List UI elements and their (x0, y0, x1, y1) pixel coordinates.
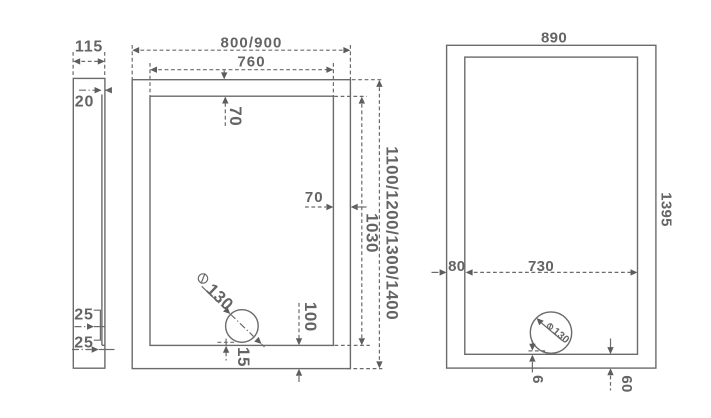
svg-text:1100/1200/1300/1400: 1100/1200/1300/1400 (382, 146, 401, 320)
svg-text:15: 15 (234, 347, 253, 367)
svg-text:70: 70 (305, 189, 324, 206)
svg-text:1030: 1030 (362, 213, 381, 253)
svg-text:25: 25 (74, 306, 93, 323)
svg-text:800/900: 800/900 (221, 34, 283, 51)
svg-text:100: 100 (301, 302, 320, 332)
svg-text:60: 60 (618, 375, 635, 392)
svg-text:890: 890 (541, 30, 567, 47)
svg-text:760: 760 (237, 53, 265, 70)
svg-text:70: 70 (226, 106, 245, 126)
svg-text:6: 6 (529, 375, 546, 384)
svg-text:25: 25 (74, 334, 93, 351)
svg-text:115: 115 (75, 39, 103, 56)
svg-text:80: 80 (448, 258, 465, 275)
svg-text:130: 130 (202, 280, 237, 314)
svg-text:20: 20 (75, 93, 94, 110)
svg-text:1395: 1395 (658, 192, 675, 227)
